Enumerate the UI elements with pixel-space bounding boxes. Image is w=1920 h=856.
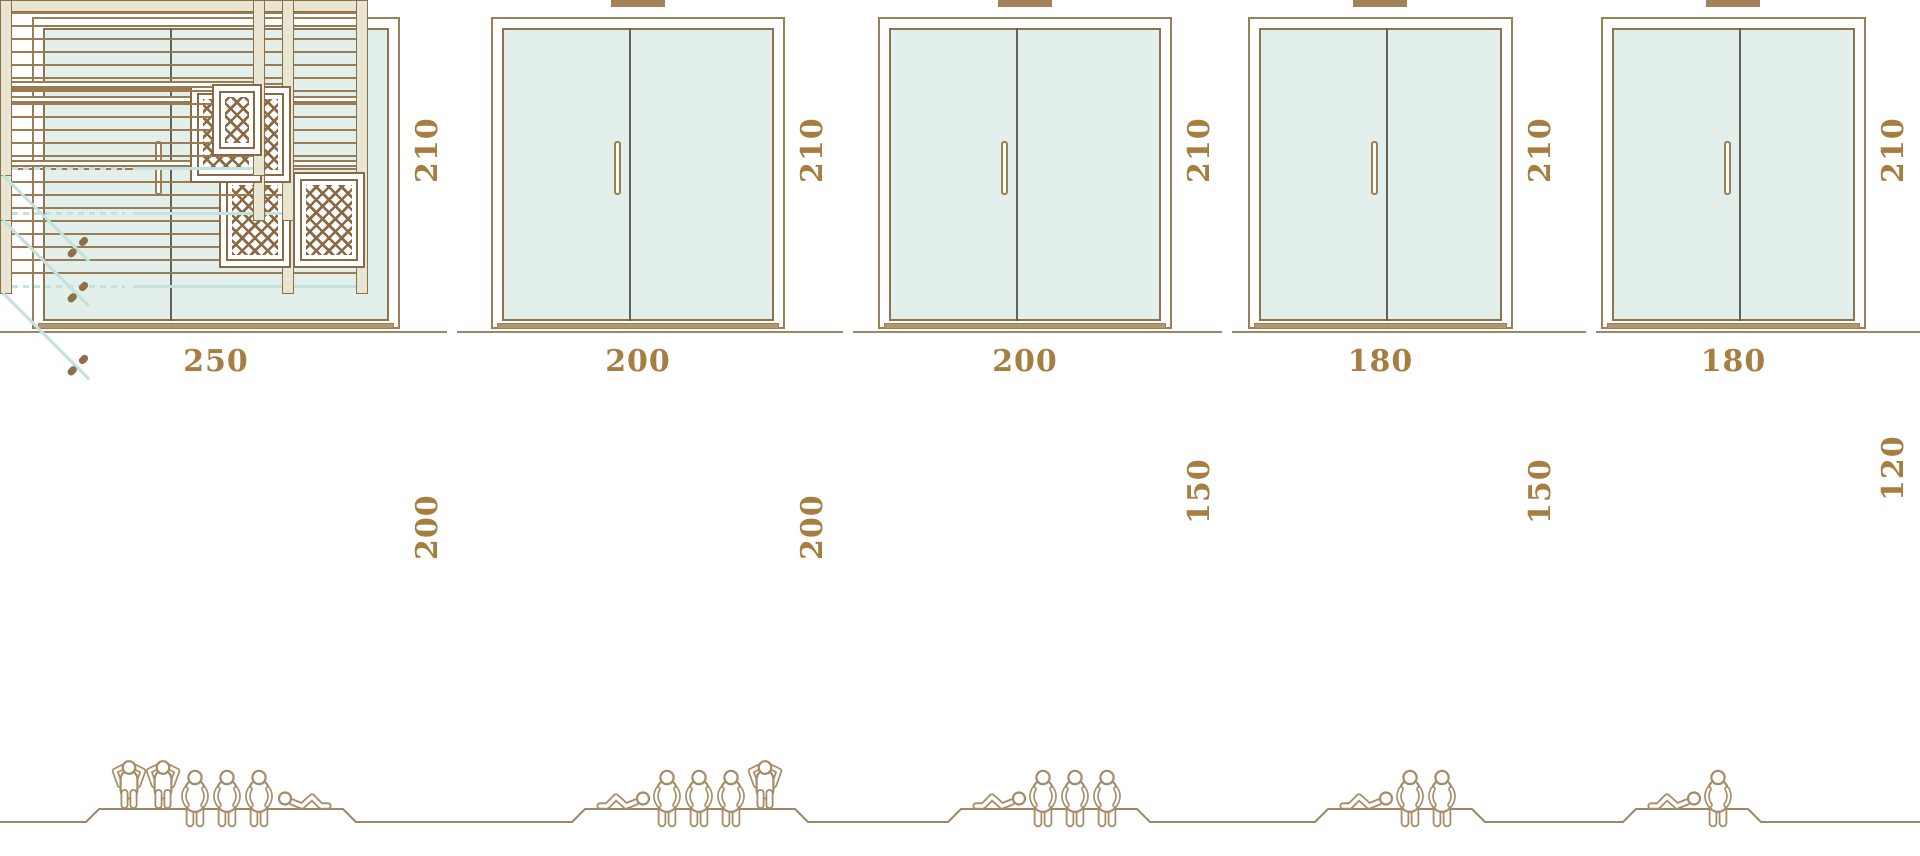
glass-front-line: [133, 167, 253, 170]
heater-stones-hatch: [225, 97, 249, 143]
height-dimension: 210: [1876, 117, 1911, 183]
width-dimension: 180: [1601, 344, 1866, 379]
depth-dimension: 120: [1876, 428, 1911, 508]
capacity-group-3: [976, 771, 1118, 823]
door-opening-dashed-line: [12, 167, 125, 170]
door-divider: [1739, 28, 1741, 321]
sauna-panel-5: 210 180 120: [0, 0, 1920, 856]
capacity-figures-strip: [0, 760, 1920, 856]
heater-grille: [219, 91, 255, 149]
capacity-group-2: [600, 761, 779, 823]
door-handle: [1724, 141, 1731, 195]
ground-line-with-platforms: [0, 809, 1920, 822]
wall-left: [0, 0, 12, 176]
sauna-size-diagram: 210 250 200 210 200: [0, 0, 1920, 856]
capacity-group-4: [1343, 771, 1453, 823]
floor-plan: [0, 0, 265, 178]
roof-vent-tab: [1706, 0, 1760, 7]
wall-top: [0, 0, 265, 12]
ground-line: [1596, 331, 1920, 333]
heater: [212, 84, 262, 156]
glass-doors: [1612, 28, 1855, 321]
door-sill: [1607, 323, 1860, 329]
capacity-group-5: [1651, 771, 1729, 823]
door-elevation: [1601, 17, 1866, 329]
capacity-group-1: [115, 761, 328, 823]
